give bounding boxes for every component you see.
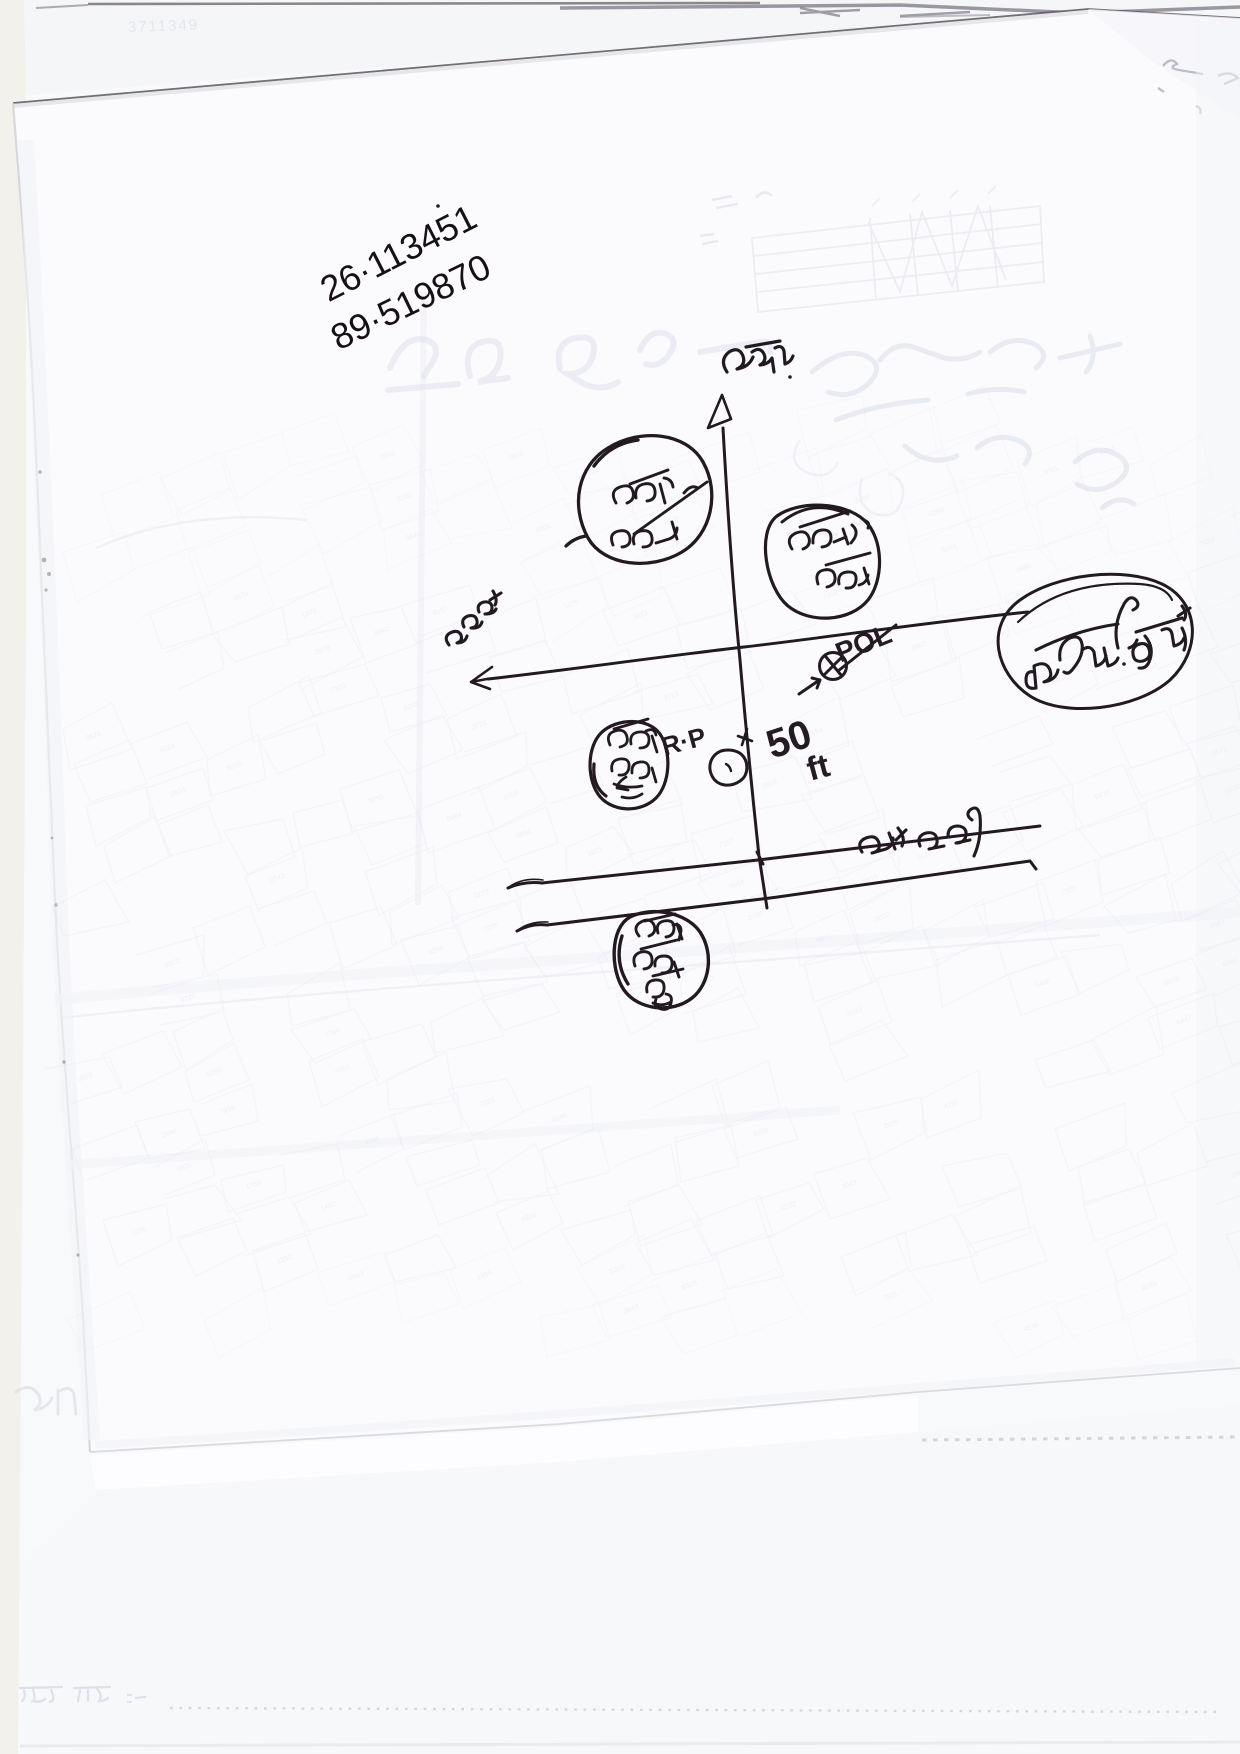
svg-text:3711349: 3711349 [128, 17, 200, 36]
